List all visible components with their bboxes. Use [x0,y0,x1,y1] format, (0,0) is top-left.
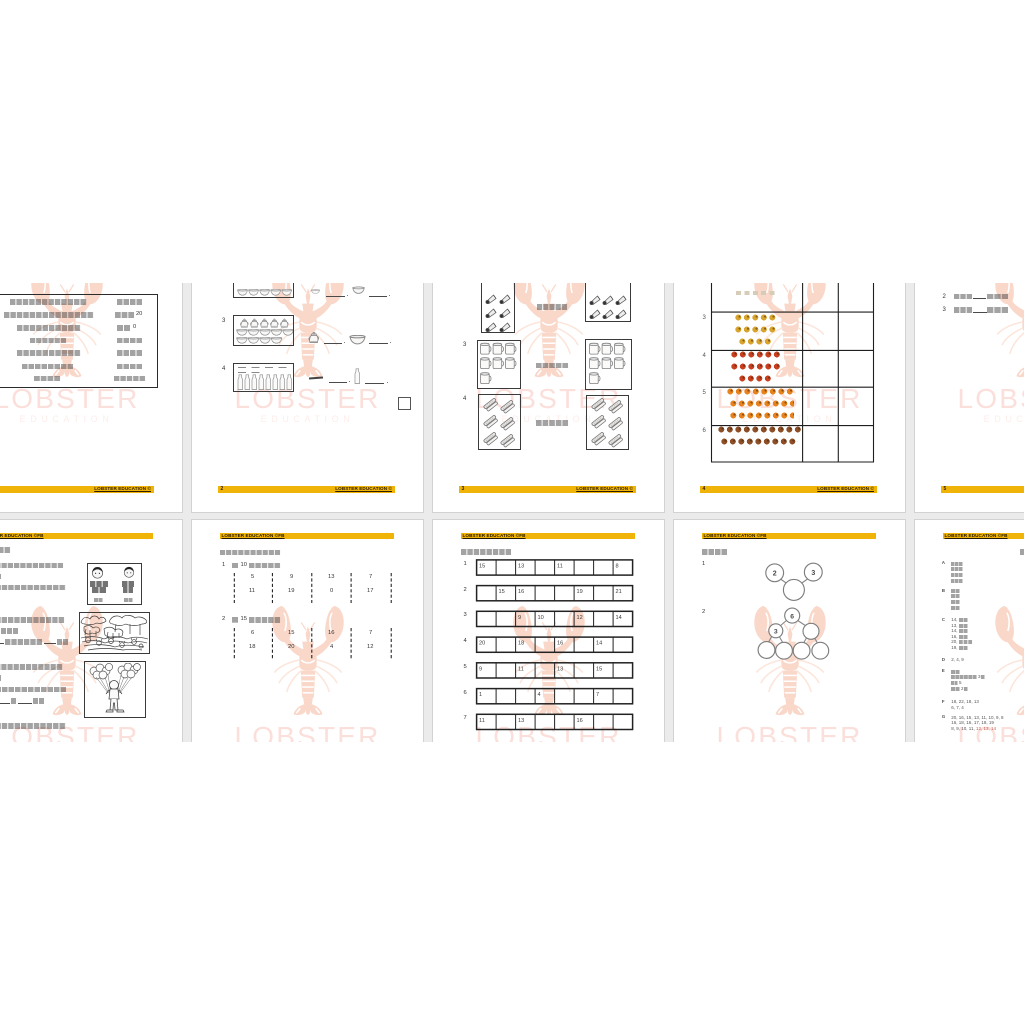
svg-text:1: 1 [479,692,482,698]
svg-text:13: 13 [518,564,524,570]
svg-text:11: 11 [518,666,524,672]
svg-text:12: 12 [577,615,583,621]
svg-text:15: 15 [499,589,505,595]
svg-text:9: 9 [479,666,482,672]
svg-text:11: 11 [557,564,563,570]
svg-text:13: 13 [518,718,524,724]
svg-text:15: 15 [596,666,602,672]
svg-text:7: 7 [596,692,599,698]
svg-text:4: 4 [538,692,541,698]
svg-text:19: 19 [577,589,583,595]
svg-text:8: 8 [616,564,619,570]
svg-text:13: 13 [557,666,563,672]
svg-text:20: 20 [479,641,485,647]
svg-text:15: 15 [479,564,485,570]
svg-text:14: 14 [596,641,602,647]
svg-text:6: 6 [790,613,794,620]
svg-text:16: 16 [557,641,563,647]
svg-text:16: 16 [518,589,524,595]
svg-text:3: 3 [811,570,815,577]
svg-text:11: 11 [479,718,485,724]
svg-text:21: 21 [616,589,622,595]
svg-text:3: 3 [774,629,778,636]
svg-text:16: 16 [577,718,583,724]
svg-text:2: 2 [773,571,777,578]
svg-text:9: 9 [518,615,521,621]
svg-text:10: 10 [538,615,544,621]
svg-text:14: 14 [616,615,622,621]
svg-text:18: 18 [518,641,524,647]
